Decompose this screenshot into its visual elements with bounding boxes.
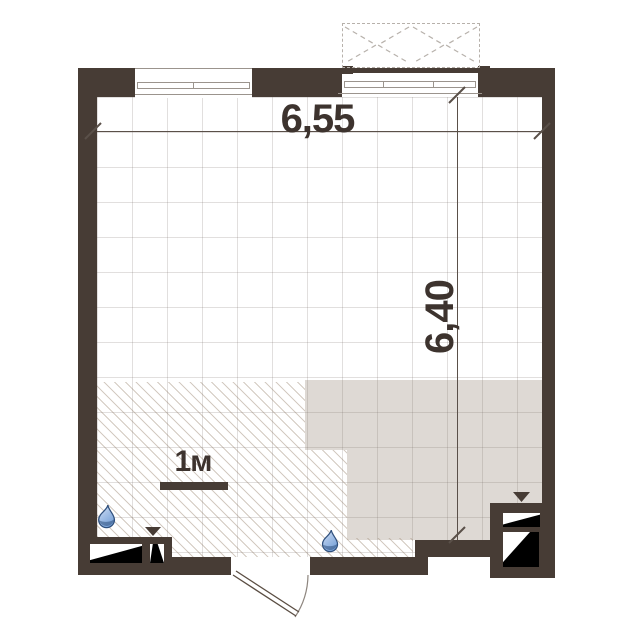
vent-shaft-4 [503,532,539,567]
vent-shaft-wedge-icon [150,544,164,563]
scale-bar-label: 1м [157,447,229,477]
window-1 [135,68,252,98]
vent-shaft-wedge-icon [503,513,540,527]
window-sill [338,93,482,94]
vent-shaft-wedge-icon [503,532,539,567]
window-mullion [193,82,194,89]
vent-shaft-1 [90,544,142,563]
balcony-outline [342,23,480,68]
top-wall-pier-middle [252,68,342,97]
window-mullion [383,81,384,88]
vent-shaft-3 [503,513,540,527]
window-sill [135,94,252,95]
scale-bar [160,482,228,490]
window-2 [342,73,478,97]
window-frame [344,81,476,88]
dashed-casement-icon [343,24,479,67]
dimension-label-width: 6,55 [240,99,395,139]
top-wall-pier-left [78,68,135,97]
right-wall [542,68,555,578]
window-mullion [433,81,434,88]
floor-plan: 1м 6,55 6,40 [0,0,632,632]
bottom-wall-right [310,557,428,575]
vent-shaft-wedge-icon [90,544,142,563]
dimension-label-height: 6,40 [420,242,460,392]
bottom-wall-step [415,540,493,557]
door-swing [233,571,308,617]
left-wall [78,68,97,575]
vent-shaft-2 [150,544,164,563]
